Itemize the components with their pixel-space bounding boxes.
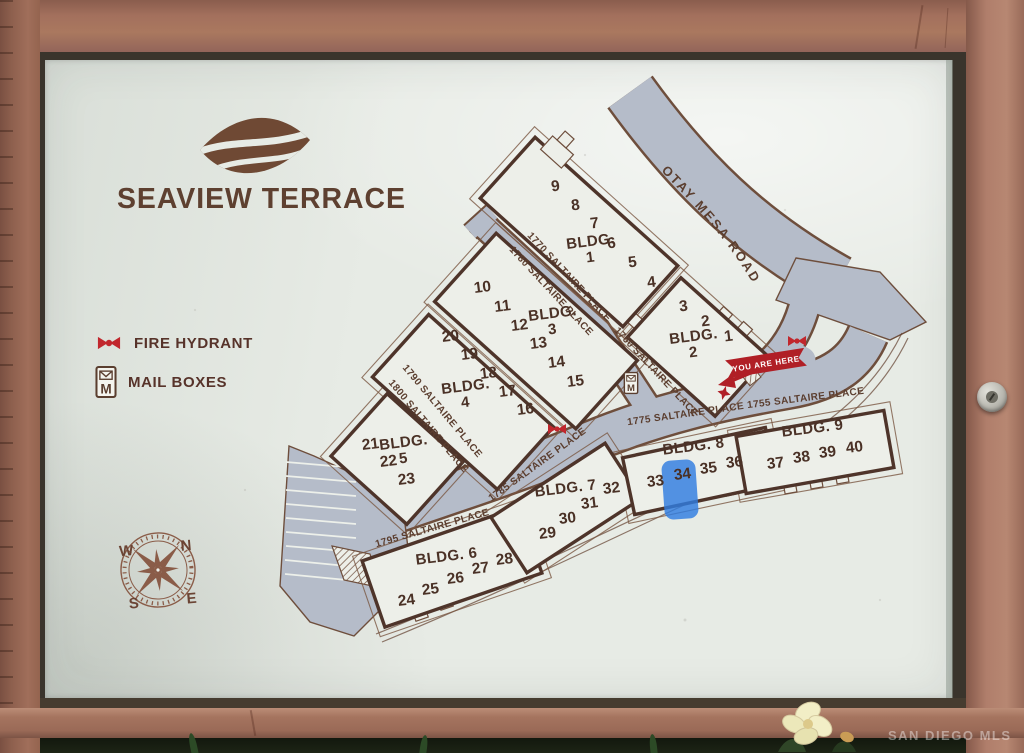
unit-number-26: 26 [446, 569, 466, 588]
mailbox-icon [94, 365, 118, 399]
unit-number-22: 22 [379, 452, 398, 471]
legend-mail-boxes-row: MAIL BOXES [94, 369, 253, 395]
unit-number-38: 38 [792, 448, 812, 467]
sign-title: SEAVIEW TERRACE [117, 183, 406, 216]
seaview-terrace-logo [198, 118, 312, 173]
frame-left [0, 0, 40, 753]
unit-number-25: 25 [421, 580, 441, 599]
unit-number-24: 24 [397, 591, 417, 610]
fire-hydrant-icon [94, 335, 124, 351]
unit-number-30: 30 [558, 509, 577, 528]
photo-watermark: SAN DIEGO MLS [888, 728, 1012, 743]
unit-number-19: 19 [460, 345, 480, 364]
unit-number-37: 37 [766, 454, 785, 473]
unit-number-14: 14 [547, 353, 567, 372]
unit-number-23: 23 [397, 470, 417, 489]
compass-north-label: N [180, 537, 192, 555]
site-map-sign-photo: M [0, 0, 1024, 753]
compass-east-label: E [186, 590, 197, 608]
legend-mail-boxes-label: MAIL BOXES [128, 374, 227, 391]
unit-number-21: 21 [361, 435, 381, 454]
unit-number-15: 15 [566, 372, 586, 391]
compass-west-label: W [118, 542, 134, 560]
unit-number-13: 13 [529, 334, 549, 353]
legend-fire-hydrant-label: FIRE HYDRANT [134, 335, 253, 352]
unit-number-28: 28 [495, 550, 515, 569]
frame-top [0, 0, 1024, 52]
unit-number-20: 20 [441, 327, 460, 346]
unit-number-32: 32 [602, 479, 621, 498]
unit-number-12: 12 [510, 316, 529, 335]
legend-fire-hydrant-row: FIRE HYDRANT [94, 330, 253, 356]
unit-number-10: 10 [473, 278, 492, 297]
unit-number-39: 39 [818, 443, 838, 462]
compass-south-label: S [128, 595, 139, 613]
unit-number-35: 35 [699, 459, 719, 478]
unit-number-11: 11 [493, 297, 512, 316]
unit-number-34: 34 [673, 465, 693, 484]
cabinet-lock[interactable] [977, 382, 1007, 412]
unit-number-36: 36 [725, 453, 745, 472]
unit-number-40: 40 [845, 438, 864, 457]
unit-number-31: 31 [580, 494, 600, 513]
mailbox-icon [624, 373, 637, 395]
compass-rose: W N S E [118, 530, 199, 613]
unit-number-18: 18 [479, 364, 499, 383]
unit-number-17: 17 [498, 382, 517, 401]
unit-number-27: 27 [471, 559, 490, 578]
unit-number-16: 16 [516, 400, 536, 419]
map-legend: FIRE HYDRANT MAIL BOXES [94, 330, 253, 408]
flower-bloom [780, 698, 836, 746]
lock-keyhole [986, 391, 998, 403]
frame-right [966, 0, 1024, 753]
unit-number-33: 33 [646, 472, 666, 491]
flower [772, 694, 872, 753]
unit-number-29: 29 [538, 524, 558, 543]
